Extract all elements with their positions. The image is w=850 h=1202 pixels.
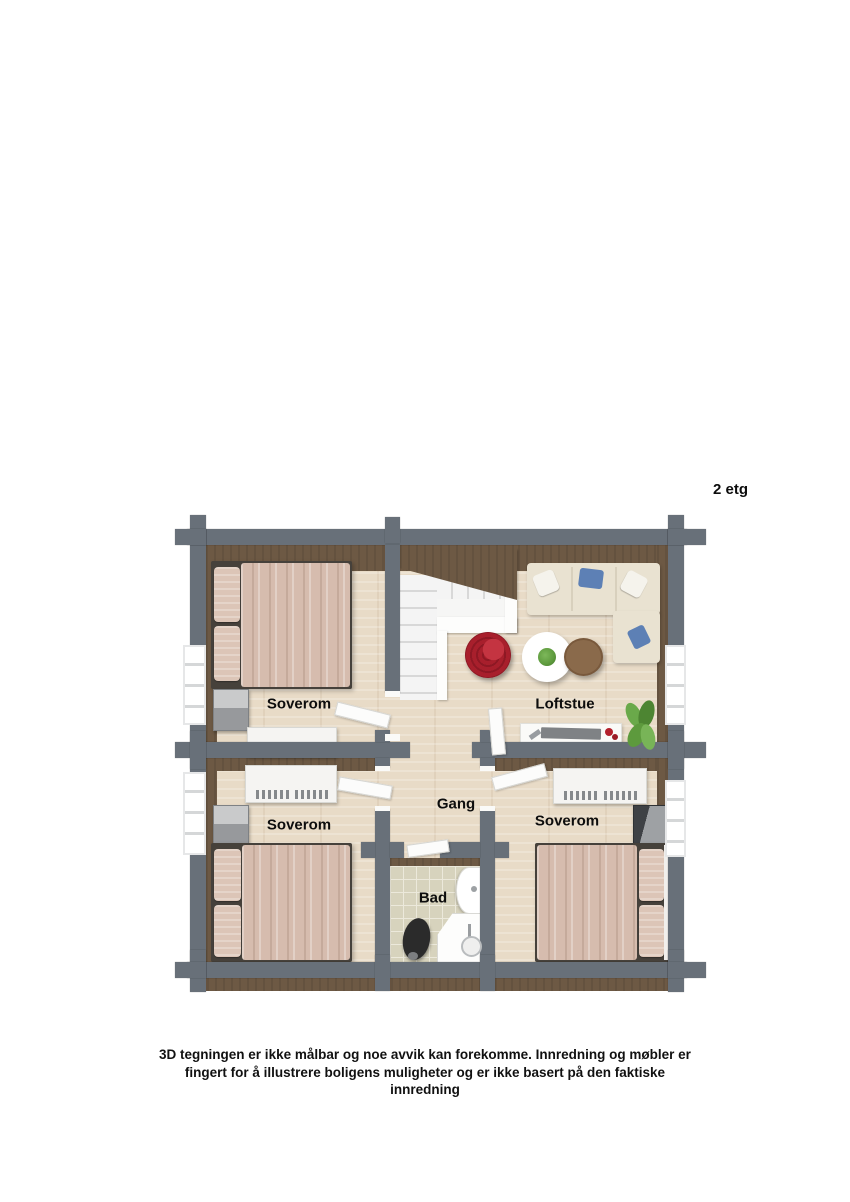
room-label-soverom-bl: Soverom [267, 817, 331, 834]
tv-monitor [541, 727, 601, 740]
bed-duvet [241, 563, 350, 687]
floor-plan: Soverom Loftstue Gang Soverom Soverom Ba… [175, 505, 705, 1005]
plant-leaf [638, 723, 657, 751]
bed-pillow [214, 905, 241, 957]
floor-plant [625, 700, 659, 752]
toilet-base [408, 952, 418, 960]
log-end [375, 955, 390, 991]
floor-label: 2 etg [713, 481, 748, 498]
table-plant [538, 648, 556, 666]
log-end [668, 731, 684, 769]
wardrobe-vent [564, 791, 598, 800]
log-end [385, 517, 400, 543]
shower-fixture [461, 936, 482, 957]
bed-pillow [214, 626, 240, 681]
disclaimer-text: 3D tegningen er ikke målbar og noe avvik… [159, 1046, 691, 1099]
wardrobe [245, 765, 337, 803]
wall-face-bottom-outer [199, 978, 681, 991]
sofa-pillow-blue [578, 568, 604, 590]
door-jamb [375, 766, 390, 771]
window [665, 780, 686, 857]
side-table [564, 638, 603, 676]
log-end [175, 529, 206, 545]
stairs-lower-flight [400, 575, 437, 700]
wall-segment [480, 809, 495, 962]
door-jamb [375, 806, 390, 811]
bathroom-sink [456, 867, 482, 914]
bed [211, 561, 352, 689]
bed-pillow [214, 849, 241, 901]
wardrobe-vent [295, 790, 328, 799]
window [665, 645, 686, 725]
sink-faucet [471, 886, 477, 892]
log-end [480, 955, 495, 991]
log-end [175, 962, 206, 978]
sofa-cushion-seam [571, 567, 573, 611]
sofa-cushion-seam [615, 567, 617, 611]
door-jamb [385, 691, 400, 697]
wall-face-bath [390, 858, 480, 866]
nightstand [213, 805, 249, 847]
window [183, 645, 206, 725]
stair-railing-edge [437, 631, 447, 700]
wall-segment [187, 962, 687, 978]
bed-pillow [639, 905, 664, 957]
room-label-loftstue: Loftstue [535, 696, 594, 713]
window [183, 772, 206, 855]
log-end [668, 962, 706, 978]
bed-duvet [537, 845, 637, 960]
bed-pillow [214, 567, 240, 622]
door-jamb [480, 766, 495, 771]
bed-pillow [639, 849, 664, 901]
red-flower [612, 734, 618, 740]
remote-control [529, 729, 542, 740]
log-end [190, 731, 206, 769]
bed [535, 843, 669, 962]
wardrobe-vent [604, 791, 638, 800]
wall-segment [495, 842, 509, 858]
room-label-soverom-br: Soverom [535, 813, 599, 830]
wall-segment [190, 742, 410, 758]
nightstand [213, 689, 249, 731]
door-jamb [480, 806, 495, 811]
bed [211, 843, 352, 962]
wall-segment [385, 545, 400, 693]
wall-segment [187, 529, 687, 545]
log-end [668, 529, 706, 545]
room-label-soverom-tl: Soverom [267, 696, 331, 713]
red-armchair [465, 632, 511, 678]
wardrobe-vent [256, 790, 289, 799]
door-jamb [385, 734, 400, 741]
wall-segment [375, 809, 390, 962]
wardrobe [553, 768, 647, 804]
bed-duvet [242, 845, 350, 960]
wall-segment [361, 842, 375, 858]
wall-segment [390, 842, 404, 858]
room-label-bad: Bad [419, 890, 447, 907]
room-label-gang: Gang [437, 796, 475, 813]
